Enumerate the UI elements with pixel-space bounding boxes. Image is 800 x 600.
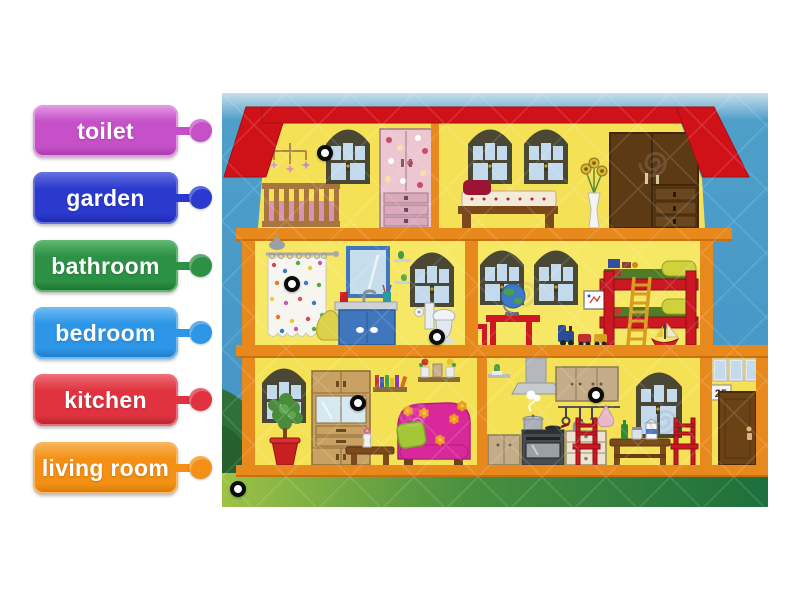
label-living-room[interactable]: living room [33, 442, 178, 494]
label-kitchen-text: kitchen [64, 387, 147, 414]
hotspot-shower[interactable] [284, 276, 300, 292]
house-illustration: 25 [222, 93, 768, 507]
connector-dot[interactable] [189, 321, 212, 344]
label-bathroom-text: bathroom [51, 253, 159, 280]
connector-dot[interactable] [189, 119, 212, 142]
label-living-room-text: living room [42, 455, 169, 482]
label-garden[interactable]: garden [33, 172, 178, 224]
connector-dot[interactable] [189, 456, 212, 479]
hotspot-nursery[interactable] [317, 145, 333, 161]
label-toilet[interactable]: toilet [33, 105, 178, 157]
watermark-overlay [222, 93, 768, 507]
connector-dot[interactable] [189, 186, 212, 209]
labels-column: toilet garden bathroom bedroom kitchen l… [0, 0, 220, 600]
hotspot-kitchen-cabinet[interactable] [588, 387, 604, 403]
hotspot-living-room-cabinet[interactable] [350, 395, 366, 411]
hotspot-toilet[interactable] [429, 329, 445, 345]
label-kitchen[interactable]: kitchen [33, 374, 178, 426]
label-bathroom[interactable]: bathroom [33, 240, 178, 292]
hotspot-garden[interactable] [230, 481, 246, 497]
connector-dot[interactable] [189, 254, 212, 277]
label-garden-text: garden [66, 185, 144, 212]
label-bedroom-text: bedroom [55, 320, 156, 347]
connector-dot[interactable] [189, 388, 212, 411]
label-bedroom[interactable]: bedroom [33, 307, 178, 359]
activity-page: toilet garden bathroom bedroom kitchen l… [0, 0, 800, 600]
label-toilet-text: toilet [77, 118, 134, 145]
